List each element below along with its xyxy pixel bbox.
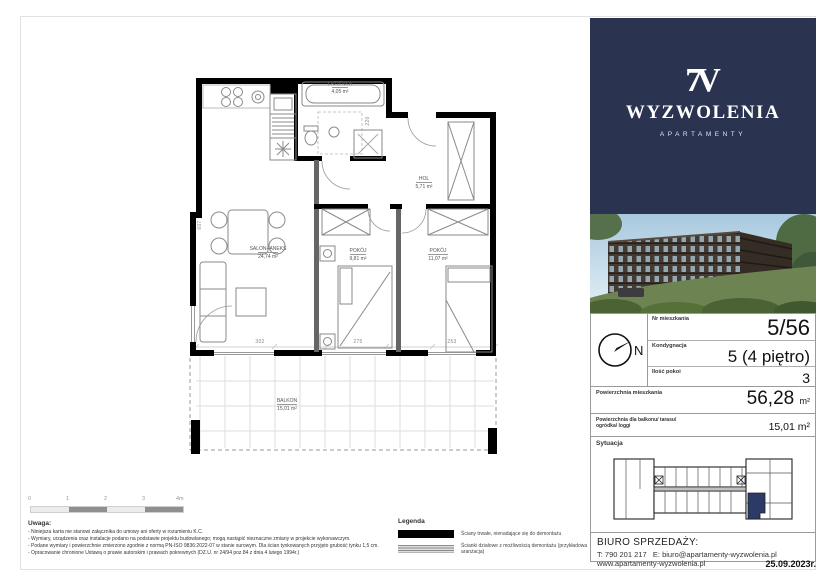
- dimension-label: 253: [432, 339, 472, 345]
- row-balcony-area: Powierzchnia dla balkonu/ tarasu/ ogródk…: [591, 414, 815, 437]
- furniture: [200, 82, 492, 352]
- apartment-area-value: 56,28 m²: [747, 389, 810, 411]
- brand-logo-icon: 7V: [685, 64, 721, 98]
- situation-title: Sytuacja: [596, 440, 623, 447]
- room-count-value: 3: [802, 371, 810, 385]
- note-item: - Podane wymiary i powierzchnie zmierzon…: [28, 543, 390, 550]
- balcony-outline: [190, 358, 497, 450]
- row-room-count: Ilość pokoi 3: [648, 367, 815, 386]
- balcony-area-value: 15,01 m²: [769, 421, 810, 433]
- sales-office-heading: BIURO SPRZEDAŻY:: [597, 537, 809, 548]
- dimension-label: 302: [240, 339, 280, 345]
- partition-wall-swatch: [398, 545, 454, 553]
- brand-tagline: APARTAMENTY: [660, 131, 746, 138]
- north-label: N: [634, 343, 643, 358]
- scale-ticks: 0 1 2 3 4m: [28, 496, 188, 504]
- brand-name: WYZWOLENIA: [626, 102, 780, 124]
- floor-plan-drawing: [0, 0, 586, 520]
- note-item: - Niniejsza karta nie stanowi załącznika…: [28, 529, 390, 536]
- notes-title: Uwaga:: [28, 520, 390, 527]
- dimension-label: 220: [365, 111, 371, 131]
- note-item: - Opracowanie chronione Ustawą o prawie …: [28, 550, 390, 557]
- room-label-balcony: BALKON 15,01 m²: [262, 398, 312, 412]
- contact-phone-email: T: 790 201 217 E: biuro@apartamenty-wyzw…: [597, 550, 809, 559]
- row-apartment-number: Nr mieszkania 5/56: [648, 314, 815, 341]
- notes-block: Uwaga: - Niniejsza karta nie stanowi zał…: [28, 520, 390, 557]
- room-label-bathroom: ŁAZIENKA 4,05 m²: [312, 81, 368, 95]
- dimension-label: 607: [197, 215, 203, 235]
- hall-dashed-zone: [318, 112, 362, 154]
- room-label-living-room: SALON+ANEKS 24,74 m²: [238, 246, 298, 260]
- email-link[interactable]: E: biuro@apartamenty-wyzwolenia.pl: [653, 550, 777, 559]
- building-render-image: [590, 214, 816, 313]
- apartment-card-page: ŁAZIENKA 4,05 m² HOL 5,71 m² SALON+ANEKS…: [0, 0, 830, 586]
- scale-strip: [30, 506, 184, 513]
- dimension-label: 275: [338, 339, 378, 345]
- legend-item-solid-walls: Ściany trwałe, nienadające się do demont…: [398, 530, 588, 538]
- balcony-tile-grid: [196, 356, 494, 448]
- north-compass-icon: N: [591, 314, 647, 384]
- legend-block: Legenda Ściany trwałe, nienadające się d…: [398, 518, 588, 560]
- solid-wall-swatch: [398, 530, 454, 538]
- legend-item-partition-walls: Ścianki działowe z możliwością demontażu…: [398, 543, 588, 555]
- issue-date: 25.09.2023r.: [690, 559, 816, 569]
- site-plan-drawing: [610, 453, 796, 525]
- phone-number: T: 790 201 217: [597, 550, 647, 559]
- legend-title: Legenda: [398, 518, 588, 525]
- unit-data-table: N Nr mieszkania 5/56 Kondygnacja 5 (4 pi…: [590, 313, 816, 562]
- floor-value: 5 (4 piętro): [728, 348, 810, 365]
- room-label-bedroom-2: POKÓJ 11,07 m²: [414, 248, 462, 262]
- room-label-bedroom-1: POKÓJ 9,81 m²: [336, 248, 380, 262]
- compass-cell: N: [591, 314, 648, 386]
- apartment-number-value: 5/56: [767, 317, 810, 339]
- brand-header: 7V WYZWOLENIA APARTAMENTY: [590, 18, 816, 214]
- note-item: - Wymiary, urządzenia oraz instalacje po…: [28, 536, 390, 543]
- situation-section: Sytuacja: [591, 437, 815, 533]
- row-apartment-area: Powierzchnia mieszkania 56,28 m²: [591, 387, 815, 414]
- row-floor: Kondygnacja 5 (4 piętro): [648, 341, 815, 366]
- scale-bar: 0 1 2 3 4m: [28, 496, 188, 513]
- info-panel: 7V WYZWOLENIA APARTAMENTY: [590, 18, 816, 568]
- room-label-hall: HOL 5,71 m²: [402, 176, 446, 190]
